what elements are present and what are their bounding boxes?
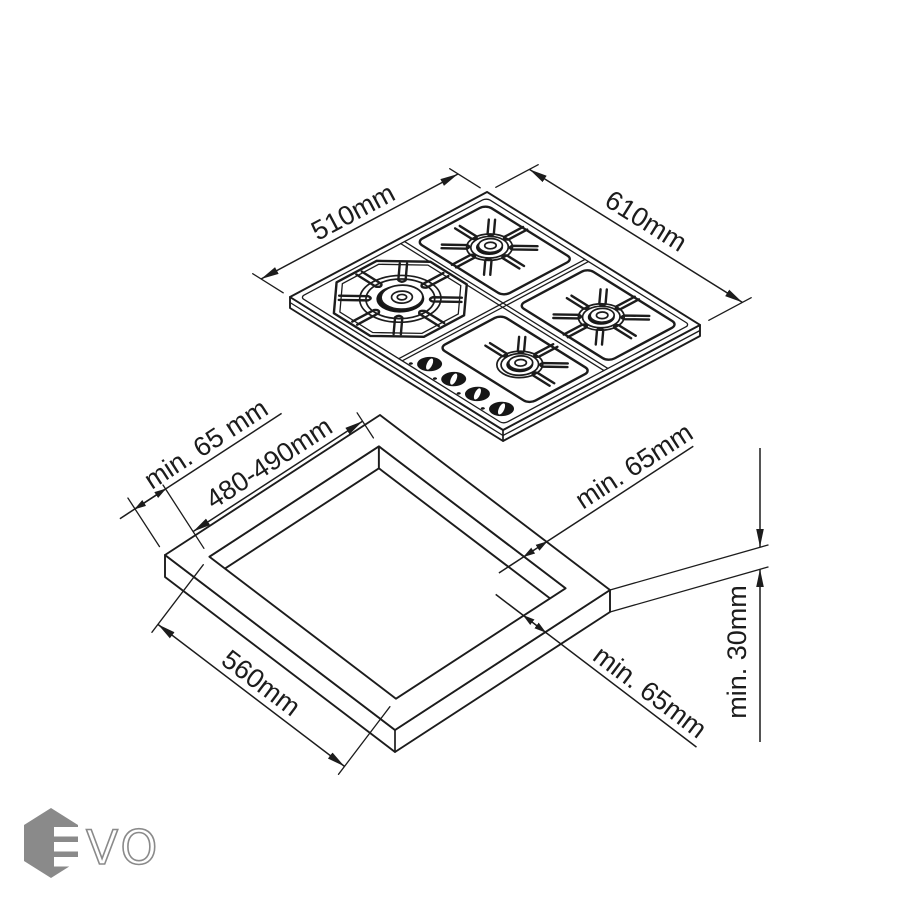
cutout-right-margin-label: min. 65mm: [570, 417, 698, 515]
countertop-thickness-label: min. 30mm: [722, 585, 752, 719]
evo-logo: VO: [24, 808, 160, 878]
diagram-svg: 510mm 610mm min. 65 mm 480-490mm min. 65…: [0, 0, 900, 900]
hob-isometric-view: [253, 165, 752, 441]
cutout-bottom-margin-label: min. 65mm: [588, 640, 713, 744]
evo-logo-e-bars: [54, 827, 88, 867]
evo-logo-wordmark: VO: [86, 821, 160, 876]
installation-diagram: 510mm 610mm min. 65 mm 480-490mm min. 65…: [0, 0, 900, 900]
hob-width-label: 610mm: [600, 184, 692, 257]
cutout-inner-wall: [379, 446, 566, 610]
